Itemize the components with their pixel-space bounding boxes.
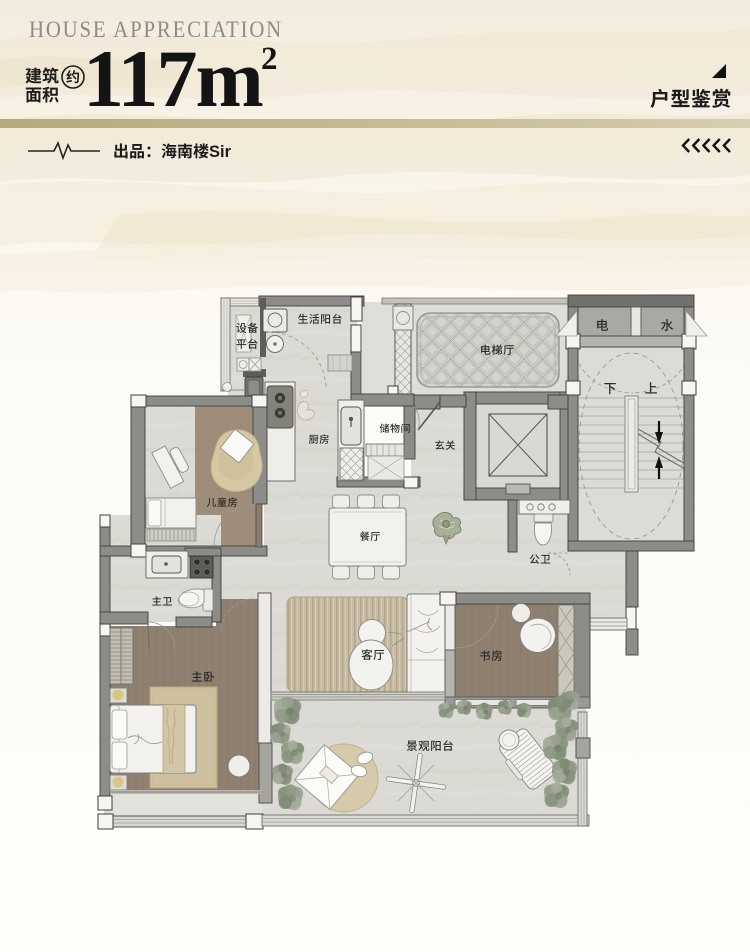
svg-text:117m: 117m: [83, 33, 262, 124]
svg-text:2: 2: [261, 41, 278, 77]
svg-text:Sir: Sir: [209, 143, 232, 161]
